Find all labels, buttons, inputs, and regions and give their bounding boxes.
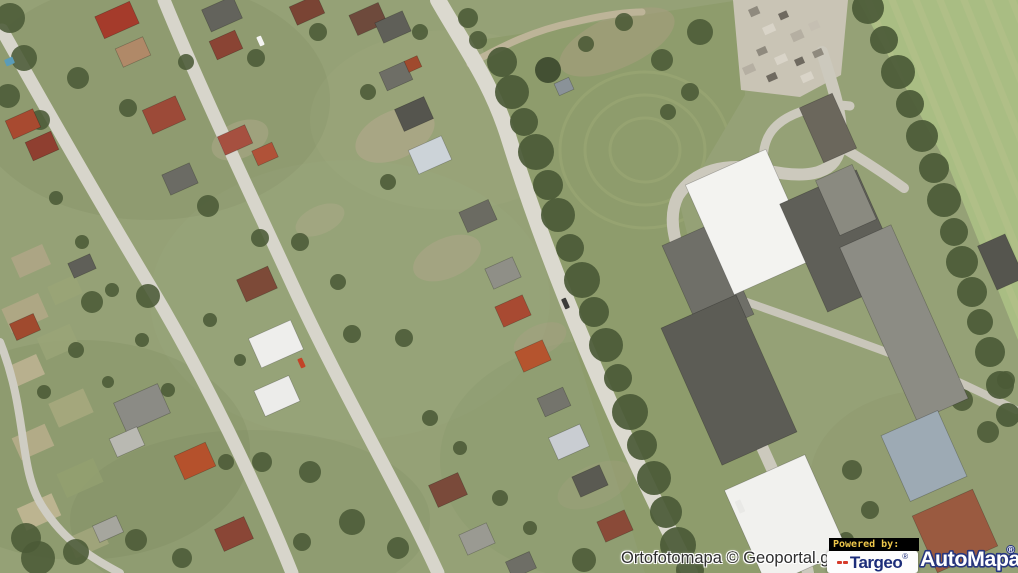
tree bbox=[977, 421, 999, 443]
tree bbox=[11, 45, 37, 71]
tree bbox=[68, 342, 84, 358]
targeo-mark-icon bbox=[837, 561, 848, 564]
tree-line-tree bbox=[556, 234, 584, 262]
tree bbox=[161, 383, 175, 397]
automapa-wordmark: AutoMapa bbox=[920, 547, 1018, 571]
automapa-logo[interactable]: AutoMapa ® bbox=[919, 542, 1018, 573]
tree bbox=[395, 329, 413, 347]
tree bbox=[252, 452, 272, 472]
tree-line-tree bbox=[946, 246, 978, 278]
tree bbox=[247, 49, 265, 67]
tree bbox=[578, 36, 594, 52]
powered-by-bar: Powered by: bbox=[829, 538, 919, 551]
tree-line-tree bbox=[589, 328, 623, 362]
tree bbox=[197, 195, 219, 217]
tree-line-tree bbox=[533, 170, 563, 200]
tree bbox=[11, 523, 41, 553]
tree bbox=[251, 229, 269, 247]
tree bbox=[293, 533, 311, 551]
tree bbox=[453, 441, 467, 455]
tree bbox=[422, 410, 438, 426]
tree bbox=[218, 454, 234, 470]
tree-line-tree bbox=[541, 198, 575, 232]
tree bbox=[339, 509, 365, 535]
tree bbox=[178, 54, 194, 70]
tree bbox=[63, 539, 89, 565]
tree bbox=[67, 67, 89, 89]
tree bbox=[842, 460, 862, 480]
tree bbox=[687, 19, 713, 45]
tree-line-tree bbox=[487, 47, 517, 77]
tree bbox=[309, 23, 327, 41]
tree bbox=[387, 537, 409, 559]
tree-line-tree bbox=[579, 297, 609, 327]
tree bbox=[651, 49, 673, 71]
tree bbox=[660, 104, 676, 120]
map-canvas[interactable] bbox=[0, 0, 1018, 573]
tree bbox=[360, 84, 376, 100]
tree bbox=[125, 529, 147, 551]
tree bbox=[492, 490, 508, 506]
tree bbox=[37, 385, 51, 399]
tree-line-tree bbox=[881, 55, 915, 89]
tree-line-tree bbox=[495, 75, 529, 109]
tree bbox=[615, 13, 633, 31]
tree bbox=[343, 325, 361, 343]
tree-line-tree bbox=[564, 262, 600, 298]
tree-line-tree bbox=[604, 364, 632, 392]
tree bbox=[172, 548, 192, 568]
tree bbox=[330, 274, 346, 290]
tree-line-tree bbox=[975, 337, 1005, 367]
tree bbox=[203, 313, 217, 327]
tree bbox=[469, 31, 487, 49]
automapa-registered-mark: ® bbox=[1007, 545, 1015, 556]
tree-line-tree bbox=[870, 26, 898, 54]
tree-line-tree bbox=[627, 430, 657, 460]
tree-line-tree bbox=[906, 120, 938, 152]
tree-line-tree bbox=[518, 134, 554, 170]
tree bbox=[458, 8, 478, 28]
tree-line-tree bbox=[957, 277, 987, 307]
tree bbox=[119, 99, 137, 117]
tree-line-tree bbox=[650, 496, 682, 528]
tree bbox=[234, 354, 246, 366]
tree-line-tree bbox=[927, 183, 961, 217]
tree bbox=[291, 233, 309, 251]
tree bbox=[861, 501, 879, 519]
tree bbox=[105, 283, 119, 297]
tree bbox=[102, 376, 114, 388]
targeo-registered-mark: ® bbox=[902, 553, 908, 561]
targeo-wordmark: Targeo bbox=[850, 554, 902, 571]
tree bbox=[81, 291, 103, 313]
tree bbox=[75, 235, 89, 249]
automapa-wordmark-svg: AutoMapa ® bbox=[919, 542, 1018, 573]
tree bbox=[135, 333, 149, 347]
tree-line-tree bbox=[896, 90, 924, 118]
tree-line-tree bbox=[510, 108, 538, 136]
tree-line-tree bbox=[940, 218, 968, 246]
tree bbox=[523, 521, 537, 535]
tree bbox=[412, 24, 428, 40]
tree bbox=[535, 57, 561, 83]
tree-line-tree bbox=[967, 309, 993, 335]
tree bbox=[997, 371, 1015, 389]
powered-by-label: Powered by: bbox=[833, 539, 899, 550]
tree bbox=[136, 284, 160, 308]
targeo-logo[interactable]: Targeo ® bbox=[827, 551, 918, 573]
tree bbox=[681, 83, 699, 101]
tree bbox=[380, 174, 396, 190]
map-viewport[interactable]: Ortofotomapa © Geoportal.gov.pl Powered … bbox=[0, 0, 1018, 573]
tree bbox=[572, 548, 596, 572]
tree-line-tree bbox=[637, 461, 671, 495]
tree-line-tree bbox=[612, 394, 648, 430]
tree bbox=[49, 191, 63, 205]
tree bbox=[299, 461, 321, 483]
tree-line-tree bbox=[919, 153, 949, 183]
